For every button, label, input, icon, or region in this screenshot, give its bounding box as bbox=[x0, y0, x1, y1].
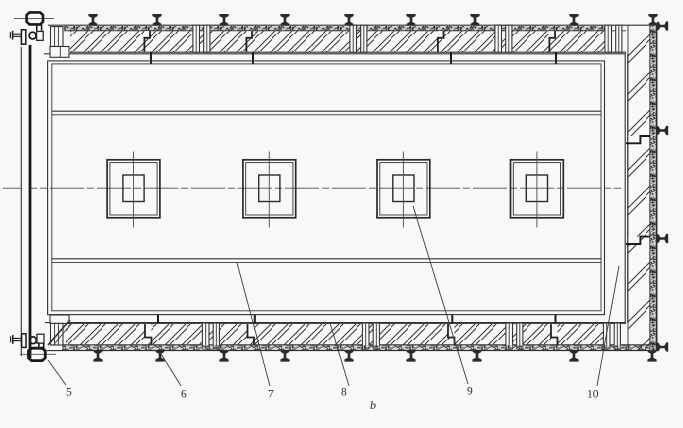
svg-text:7: 7 bbox=[268, 389, 274, 401]
svg-text:9: 9 bbox=[467, 386, 473, 398]
svg-text:10: 10 bbox=[587, 389, 599, 401]
svg-text:8: 8 bbox=[341, 387, 347, 399]
svg-text:6: 6 bbox=[181, 389, 187, 401]
svg-text:5: 5 bbox=[66, 387, 72, 399]
svg-text:b: b bbox=[370, 398, 376, 412]
